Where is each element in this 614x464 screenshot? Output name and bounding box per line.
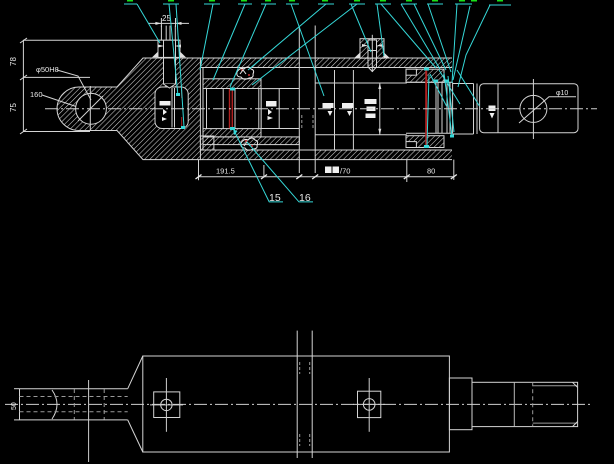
svg-text:80: 80	[427, 167, 435, 176]
svg-text:15: 15	[269, 192, 281, 204]
svg-text:75: 75	[9, 103, 18, 112]
svg-text:78: 78	[9, 57, 18, 66]
svg-text:191.5: 191.5	[216, 167, 235, 176]
svg-text:/70: /70	[340, 167, 350, 176]
svg-text:φ10: φ10	[556, 90, 568, 97]
svg-text:φ50H8: φ50H8	[36, 65, 59, 74]
svg-text:50: 50	[11, 402, 18, 410]
svg-text:160: 160	[30, 90, 43, 99]
svg-text:16: 16	[299, 192, 311, 204]
